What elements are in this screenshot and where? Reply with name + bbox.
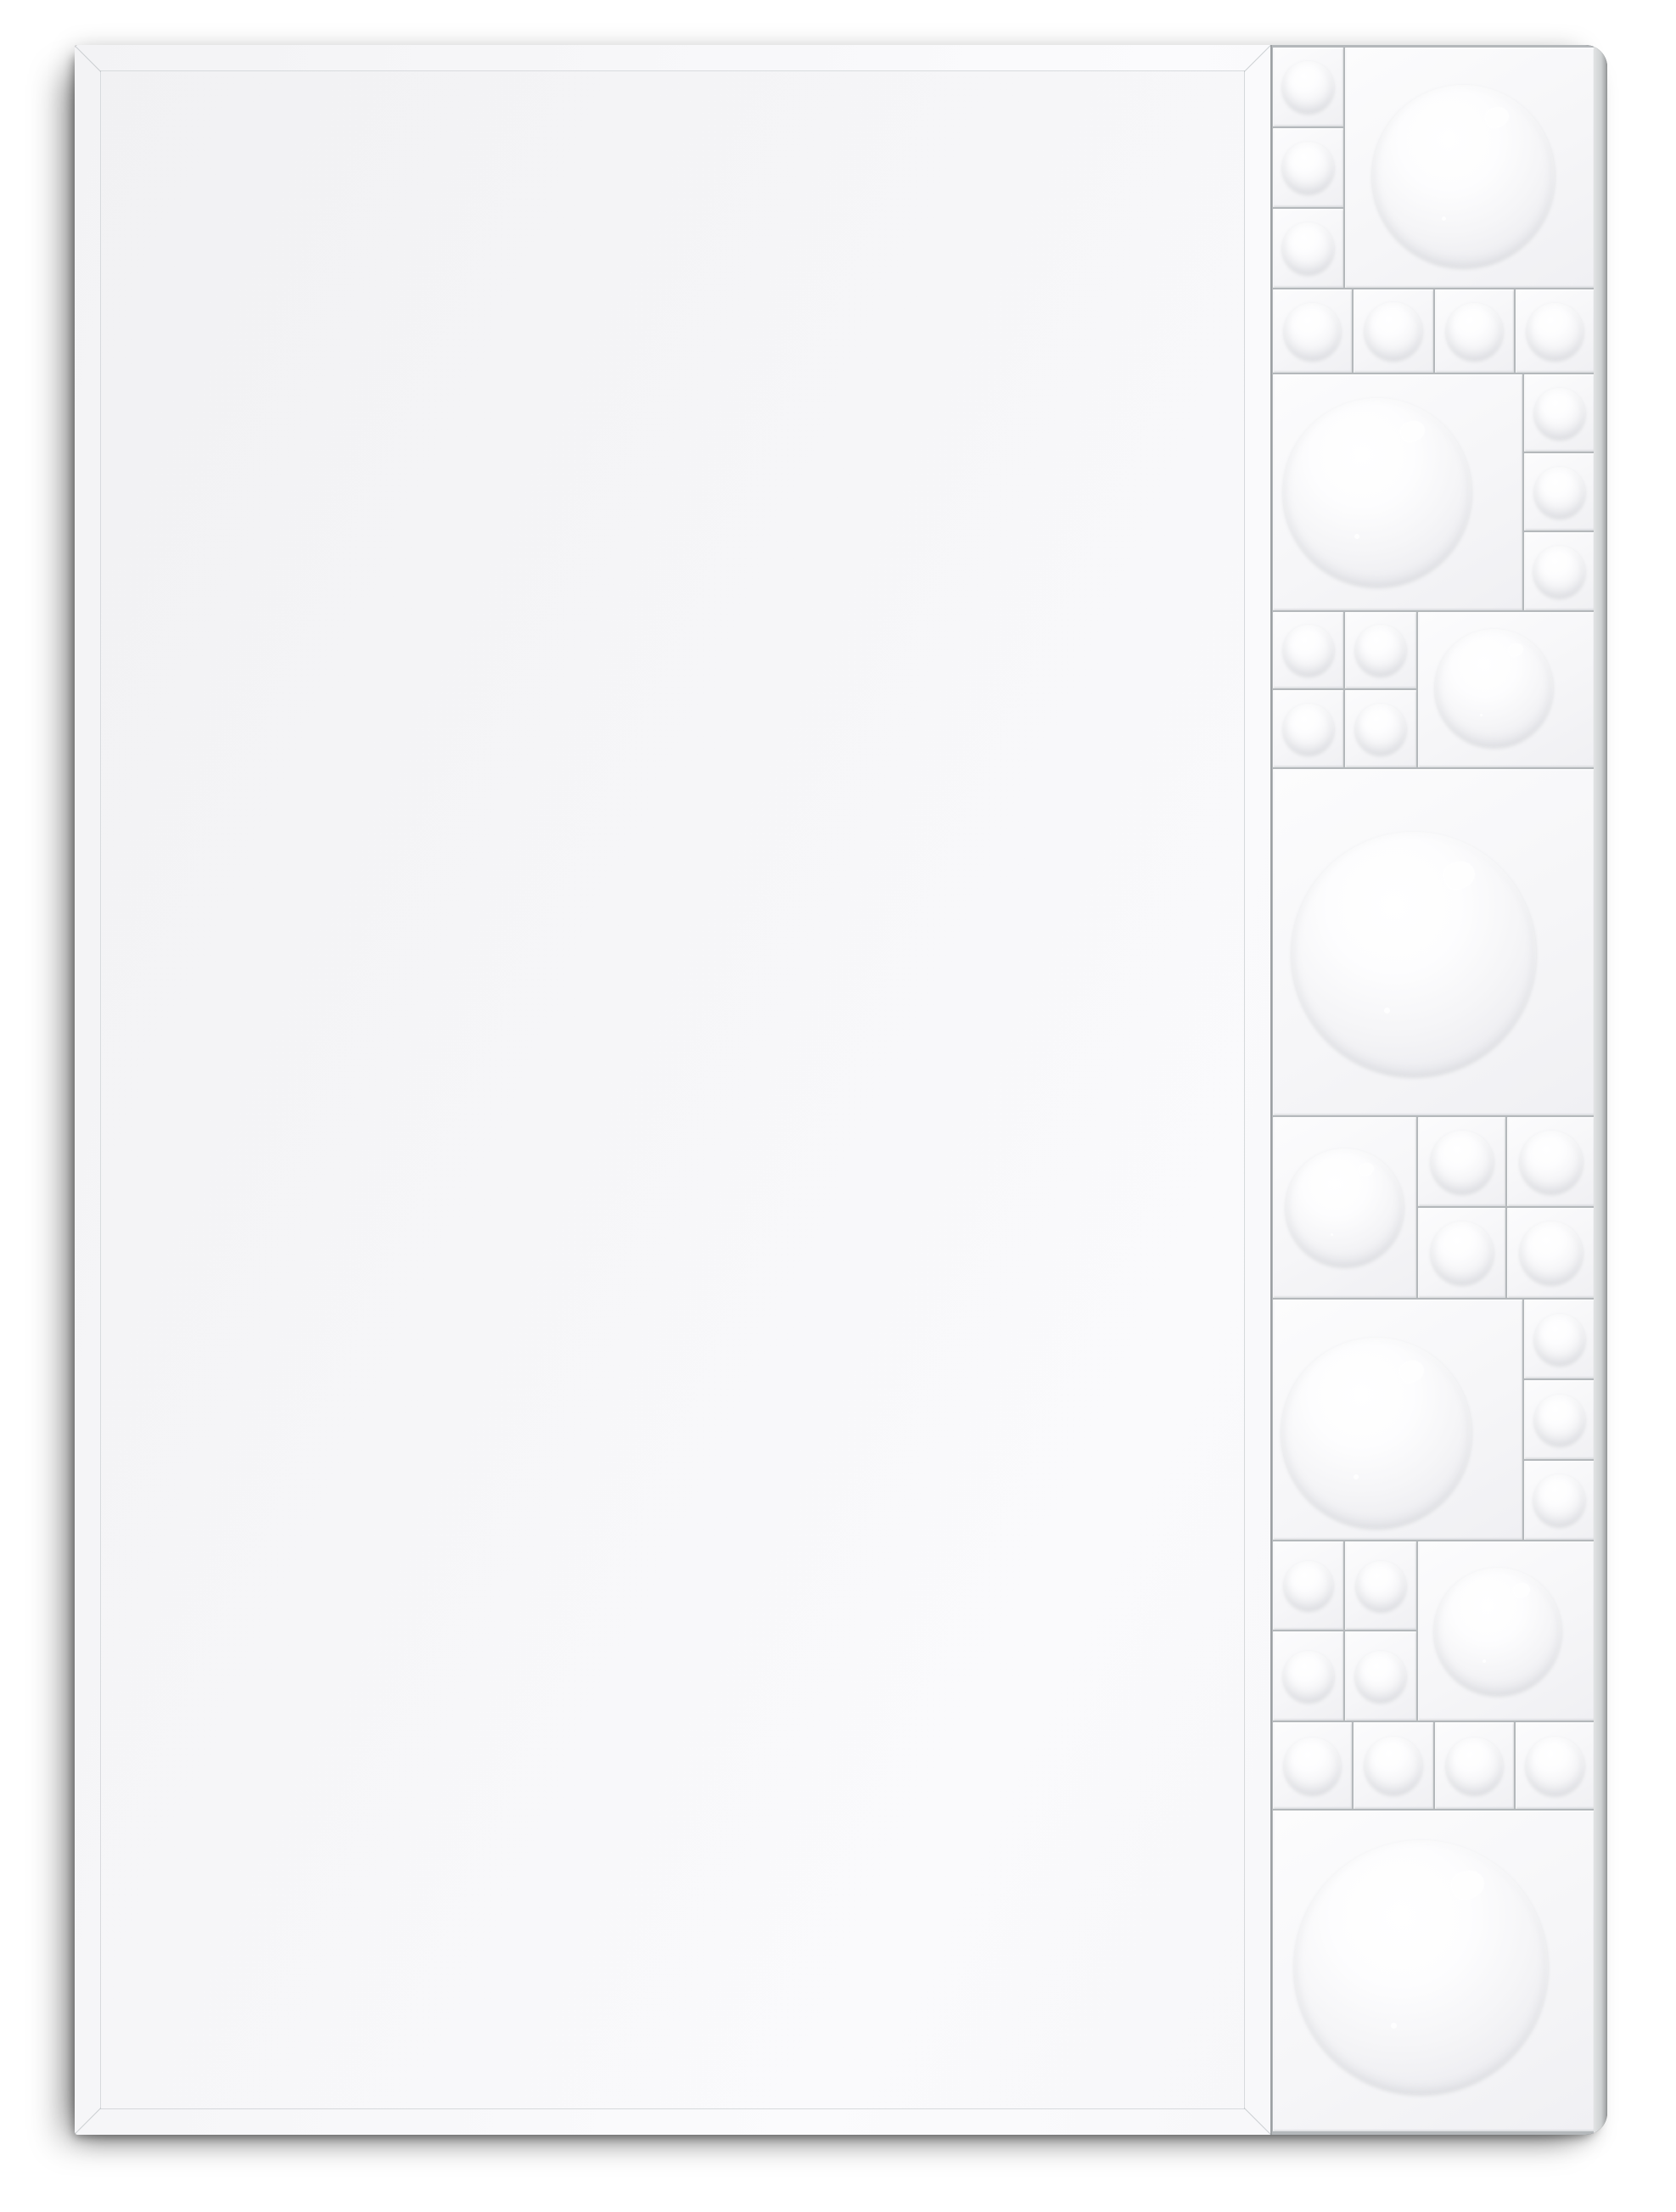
bevel-miter-bottom-right — [1244, 2108, 1271, 2135]
mosaic-tile — [1435, 1722, 1514, 1809]
bubble-dome — [1431, 1131, 1494, 1193]
bubble-dome — [1520, 1131, 1583, 1193]
mosaic-tile — [1273, 209, 1343, 288]
bubble-dome — [1282, 142, 1334, 194]
bubble-dome — [1294, 1840, 1548, 2094]
mosaic-tile — [1273, 1811, 1595, 2131]
product-photo — [0, 0, 1676, 2212]
mosaic-tile — [1273, 289, 1352, 373]
mosaic-tile — [1418, 1541, 1595, 1721]
bubble-dome — [1533, 546, 1585, 598]
mosaic-tile — [1354, 1722, 1433, 1809]
mosaic-tile — [1273, 1300, 1522, 1540]
bubble-mosaic-strip — [1270, 45, 1595, 2135]
bubble-dome — [1283, 704, 1334, 755]
mosaic-tile — [1524, 453, 1595, 531]
bubble-dome — [1446, 1738, 1503, 1794]
bubble-dome — [1533, 1474, 1585, 1526]
bubble-dome — [1283, 1651, 1334, 1702]
bubble-dome — [1372, 85, 1555, 267]
dome-highlight — [1398, 417, 1428, 445]
mosaic-tile — [1524, 1380, 1595, 1459]
bubble-dome — [1520, 1221, 1583, 1284]
bubble-dome — [1534, 1395, 1585, 1446]
bubble-dome — [1282, 222, 1334, 274]
mosaic-tile — [1418, 1117, 1505, 1206]
mosaic-tile — [1524, 532, 1595, 610]
bubble-dome — [1292, 832, 1536, 1076]
bubble-dome — [1526, 1737, 1584, 1795]
dome-speck — [1391, 2023, 1397, 2029]
mosaic-tile — [1345, 1541, 1416, 1630]
dome-highlight — [1447, 1866, 1488, 1904]
bubble-dome — [1434, 1568, 1561, 1695]
mosaic-tile — [1418, 612, 1595, 767]
mosaic-tile — [1418, 1208, 1505, 1298]
bubble-dome — [1435, 629, 1553, 747]
bubble-dome — [1356, 1561, 1406, 1611]
bubble-dome — [1283, 625, 1334, 676]
dome-speck — [1331, 1233, 1333, 1236]
wall-mirror — [75, 45, 1607, 2135]
dome-speck — [1354, 1474, 1359, 1479]
mosaic-tile — [1273, 128, 1343, 207]
mosaic-tile — [1524, 1461, 1595, 1540]
mosaic-tile — [1273, 1117, 1416, 1298]
mirror-bevel-line — [100, 70, 1245, 2109]
bevel-miter-bottom-left — [75, 2108, 101, 2135]
bubble-dome — [1365, 1737, 1422, 1794]
mosaic-tile — [1273, 1722, 1352, 1809]
dome-speck — [1442, 216, 1446, 221]
mosaic-tile — [1273, 612, 1343, 688]
mosaic-tile — [1507, 1208, 1595, 1298]
mosaic-tile — [1273, 690, 1343, 767]
bubble-dome — [1534, 1314, 1585, 1365]
bubble-dome — [1282, 61, 1334, 113]
mosaic-tile — [1507, 1117, 1595, 1206]
mosaic-tile — [1516, 289, 1595, 373]
mosaic-tile — [1345, 1631, 1416, 1721]
dome-speck — [1483, 1659, 1486, 1663]
bubble-dome — [1527, 303, 1584, 360]
mosaic-tile — [1435, 289, 1514, 373]
mosaic-tile — [1273, 48, 1343, 126]
mosaic-tile — [1273, 374, 1522, 610]
mosaic-tile — [1345, 612, 1416, 688]
bevel-miter-top-right — [1244, 45, 1271, 72]
mosaic-tile — [1524, 374, 1595, 452]
mosaic-tile — [1345, 48, 1595, 288]
dome-highlight — [1483, 104, 1512, 132]
dome-highlight — [1357, 1160, 1376, 1178]
mosaic-tile — [1354, 289, 1433, 373]
bubble-dome — [1355, 625, 1406, 676]
mirror-edge-face — [1594, 45, 1607, 2135]
mirror-glass — [75, 45, 1270, 2135]
bubble-dome — [1284, 303, 1341, 360]
dome-speck — [1354, 534, 1359, 539]
mosaic-tile — [1273, 769, 1595, 1115]
dome-highlight — [1511, 1580, 1533, 1600]
bubble-dome — [1534, 388, 1585, 439]
bubble-dome — [1281, 1338, 1471, 1528]
dome-highlight — [1439, 856, 1478, 894]
dome-speck — [1480, 714, 1483, 716]
bubble-dome — [1284, 1561, 1333, 1610]
bubble-dome — [1365, 302, 1422, 360]
bubble-dome — [1286, 1148, 1404, 1266]
bubble-dome — [1283, 398, 1471, 587]
bubble-dome — [1446, 303, 1503, 360]
bubble-dome — [1355, 1651, 1406, 1702]
mosaic-tile — [1345, 690, 1416, 767]
bubble-dome — [1534, 467, 1585, 518]
bubble-dome — [1284, 1738, 1341, 1794]
bubble-dome — [1431, 1221, 1494, 1284]
mosaic-tile — [1516, 1722, 1595, 1809]
dome-highlight — [1506, 641, 1525, 659]
bevel-miter-top-left — [75, 45, 101, 72]
mosaic-tile — [1524, 1300, 1595, 1378]
mosaic-tile — [1273, 1541, 1343, 1630]
mosaic-tile — [1273, 1631, 1343, 1721]
dome-speck — [1384, 1008, 1390, 1013]
bubble-dome — [1355, 704, 1406, 755]
dome-highlight — [1396, 1356, 1427, 1385]
